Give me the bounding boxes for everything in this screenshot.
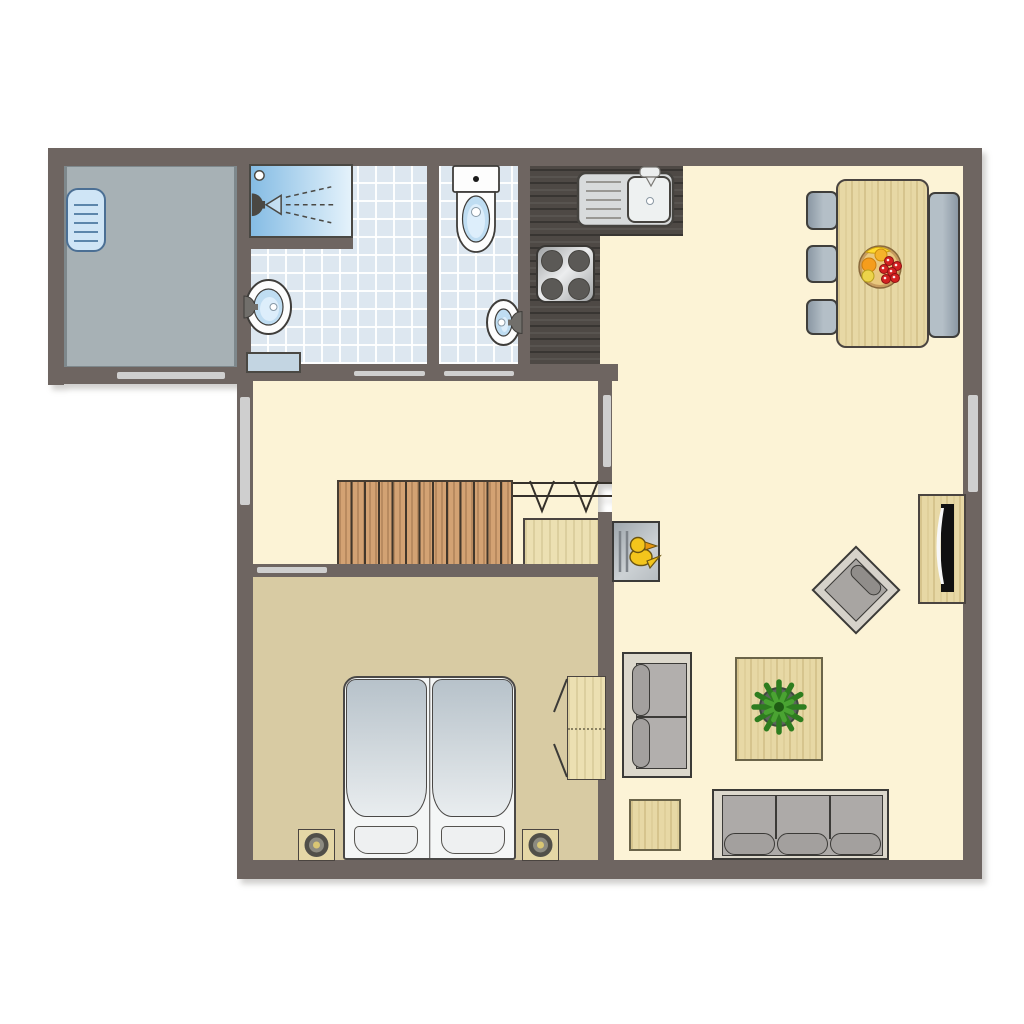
bathroom-door-threshold bbox=[354, 371, 425, 376]
living-room-floor bbox=[612, 364, 963, 862]
side-table bbox=[629, 799, 681, 851]
toilet bbox=[452, 165, 500, 265]
radiator bbox=[66, 188, 106, 252]
exterior-wall-top bbox=[48, 148, 982, 166]
storage-wall-left bbox=[48, 148, 64, 385]
exterior-wall-bottom bbox=[237, 860, 982, 879]
armchair bbox=[812, 546, 900, 634]
wardrobe bbox=[567, 676, 606, 780]
toilet-sink bbox=[486, 299, 521, 346]
shower bbox=[249, 164, 353, 238]
staircase bbox=[337, 480, 513, 568]
dining-chair bbox=[806, 245, 838, 283]
bathroom-toilet-wall bbox=[427, 148, 439, 366]
sofa bbox=[712, 789, 889, 860]
tv bbox=[932, 500, 958, 596]
hall-living-wall-lower bbox=[598, 512, 612, 568]
fruit-bowl bbox=[858, 245, 902, 289]
nightstand bbox=[522, 829, 559, 861]
toilet-door-threshold bbox=[444, 371, 514, 376]
hallway-window bbox=[240, 397, 250, 505]
living-room-window bbox=[968, 395, 978, 492]
apartment-floor-plan bbox=[0, 0, 1024, 1024]
nightstand bbox=[298, 829, 335, 861]
dining-chair bbox=[806, 299, 838, 335]
floor-plan-canvas bbox=[0, 0, 1024, 1024]
duck-cabinet bbox=[612, 521, 660, 582]
stair-continuation-symbol bbox=[513, 477, 613, 515]
kitchen-sink bbox=[577, 172, 674, 227]
potted-plant bbox=[752, 680, 806, 734]
understairs-closet bbox=[523, 518, 600, 570]
wall-glass-panel bbox=[603, 395, 611, 467]
bedroom-door-threshold bbox=[257, 567, 327, 573]
wardrobe-doors bbox=[550, 674, 570, 782]
bathroom-sink bbox=[245, 279, 292, 335]
loveseat bbox=[622, 652, 692, 778]
double-bed bbox=[343, 676, 516, 860]
dining-bench bbox=[928, 192, 960, 338]
dining-chair bbox=[806, 191, 838, 230]
shower-wall bbox=[249, 238, 353, 249]
shower-step bbox=[246, 352, 301, 373]
stove bbox=[536, 245, 595, 303]
storage-door-threshold bbox=[117, 372, 225, 379]
